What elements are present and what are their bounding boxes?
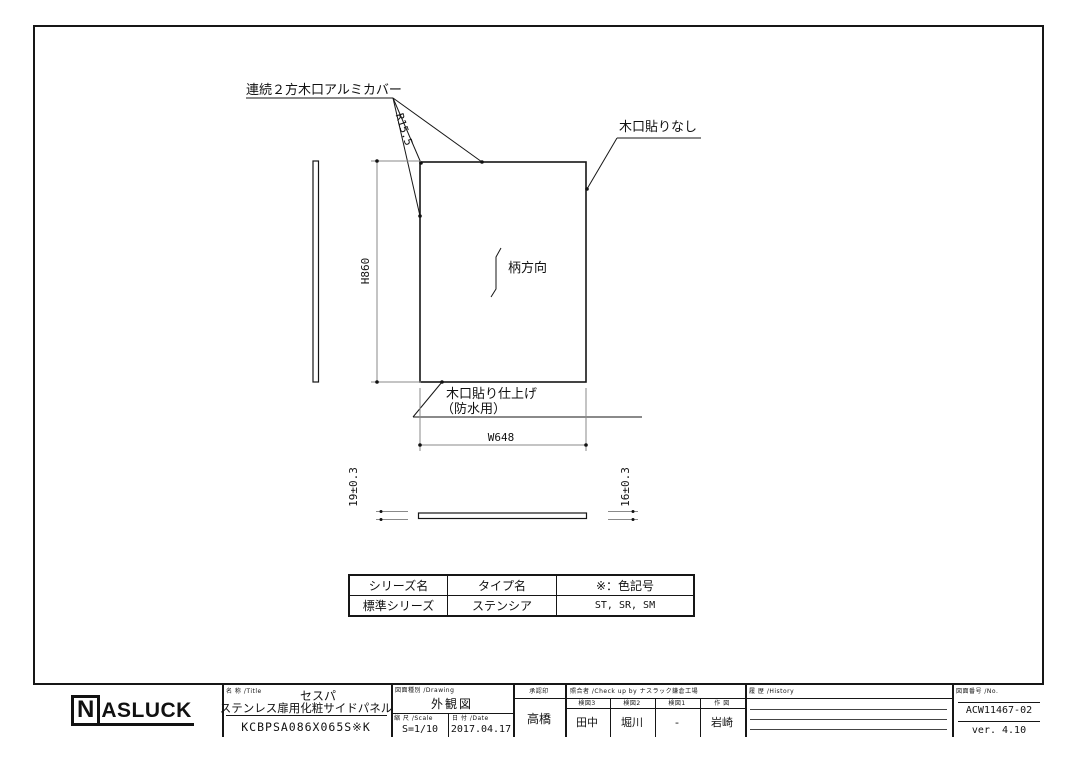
logo-n-mark: N	[71, 695, 100, 726]
check-col-label: 作 図	[714, 701, 729, 707]
spec-table-header-row: シリーズ名 タイプ名 ※：色記号	[349, 575, 694, 596]
width-dimension: W648	[488, 432, 515, 444]
drawing-canvas	[0, 0, 1080, 763]
edge-band-finish-label: 木口貼り仕上げ	[446, 388, 537, 402]
logo-wordmark: ASLUCK	[100, 700, 194, 726]
rule	[958, 702, 1040, 703]
series-value: 標準シリーズ	[349, 596, 448, 617]
edge-cover-label: 連続２方木口アルミカバー	[246, 84, 402, 98]
color-code-value: ST, SR, SM	[557, 596, 695, 617]
divider	[700, 698, 701, 737]
height-dimension: H860	[360, 258, 372, 285]
spec-table: シリーズ名 タイプ名 ※：色記号 標準シリーズ ステンシア ST, SR, SM	[348, 574, 695, 617]
checker-name: -	[675, 717, 679, 728]
scale-label: 縮 尺 /Scale	[394, 716, 433, 722]
date-label: 日 付 /Date	[452, 716, 489, 722]
check-col-label: 検図2	[623, 701, 640, 707]
history-label: 履 歴 /History	[749, 689, 794, 695]
type-value: ステンシア	[448, 596, 557, 617]
color-code-header: ※：色記号	[557, 575, 695, 596]
rule	[958, 721, 1040, 722]
thickness-left-dimension: 19±0.3	[348, 467, 360, 507]
nasluck-logo: N ASLUCK	[71, 695, 194, 726]
history-line	[750, 709, 947, 710]
checker-name: 堀川	[621, 717, 643, 728]
divider	[513, 685, 515, 737]
divider	[610, 698, 611, 737]
checker-name: 田中	[576, 717, 598, 728]
product-name: ステンレス扉用化粧サイドパネル	[220, 703, 393, 715]
check-up-label: 照合者 /Check up by ナスラック鎌倉工場	[570, 689, 698, 695]
model-number: KCBPSA086X065S※K	[241, 722, 371, 734]
grain-direction-label: 柄方向	[508, 262, 547, 276]
underline	[226, 715, 387, 716]
drawing-type-label: 図面種別 /Drawing	[395, 688, 454, 694]
row-line	[391, 713, 513, 714]
divider	[655, 698, 656, 737]
drawing-sheet: 連続２方木口アルミカバー R15.5 木口貼りなし H860 柄方向 木口貼り仕…	[0, 0, 1080, 763]
thickness-right-dimension: 16±0.3	[620, 467, 632, 507]
check-col-label: 検図1	[668, 701, 685, 707]
no-edge-band-label: 木口貼りなし	[619, 121, 697, 135]
divider	[448, 713, 449, 737]
type-header: タイプ名	[448, 575, 557, 596]
divider	[952, 685, 954, 737]
divider	[745, 685, 747, 737]
edge-band-finish-note: （防水用）	[441, 403, 506, 417]
date-value: 2017.04.17	[451, 725, 511, 735]
spec-table-value-row: 標準シリーズ ステンシア ST, SR, SM	[349, 596, 694, 617]
approver-name: 高橋	[527, 713, 551, 725]
check-col-label: 検図3	[578, 701, 595, 707]
history-line	[750, 719, 947, 720]
panel-edge-view	[313, 161, 319, 382]
drawing-type: 外観図	[431, 698, 473, 710]
checker-name: 岩崎	[711, 717, 733, 728]
panel-front-view	[420, 162, 586, 382]
row-line	[745, 698, 952, 699]
drawing-number: ACW11467-02	[966, 706, 1032, 716]
divider	[565, 685, 567, 737]
number-label: 図面番号 /No.	[956, 689, 998, 695]
name-label: 名 称 /Title	[226, 689, 262, 695]
title-block: N ASLUCK 名 称 /Title セスパ ステンレス扉用化粧サイドパネル …	[33, 683, 1044, 737]
row-line	[513, 698, 565, 699]
panel-bottom-view	[419, 513, 587, 519]
scale-value: S=1/10	[402, 725, 438, 735]
series-header: シリーズ名	[349, 575, 448, 596]
version: ver. 4.10	[972, 726, 1026, 736]
approval-label: 承認印	[529, 689, 549, 695]
history-line	[750, 729, 947, 730]
